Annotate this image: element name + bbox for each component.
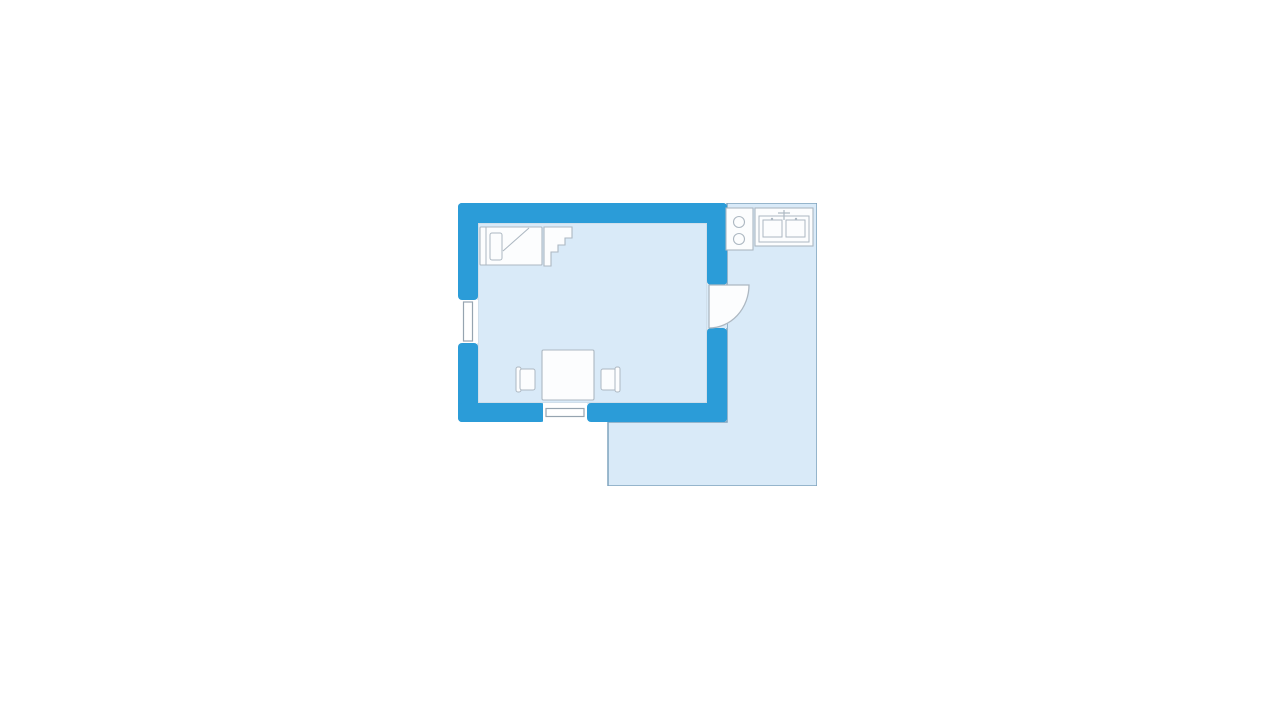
wall-top [458,203,727,223]
stove-hob-icon [726,208,753,250]
kitchen-sink-icon [755,208,813,246]
window-left [464,302,473,341]
wall-right-upper [707,203,727,285]
dining-table-icon [542,350,594,400]
window-bottom [546,409,584,417]
page-background [0,0,1280,720]
wall-bottom-left [458,403,545,422]
chair-left-icon [516,367,535,392]
bed-icon [480,227,542,265]
wall-left-upper [458,203,478,300]
chair-right-icon [601,367,620,392]
floor-plan [458,203,817,486]
wall-bottom-right [587,403,727,422]
